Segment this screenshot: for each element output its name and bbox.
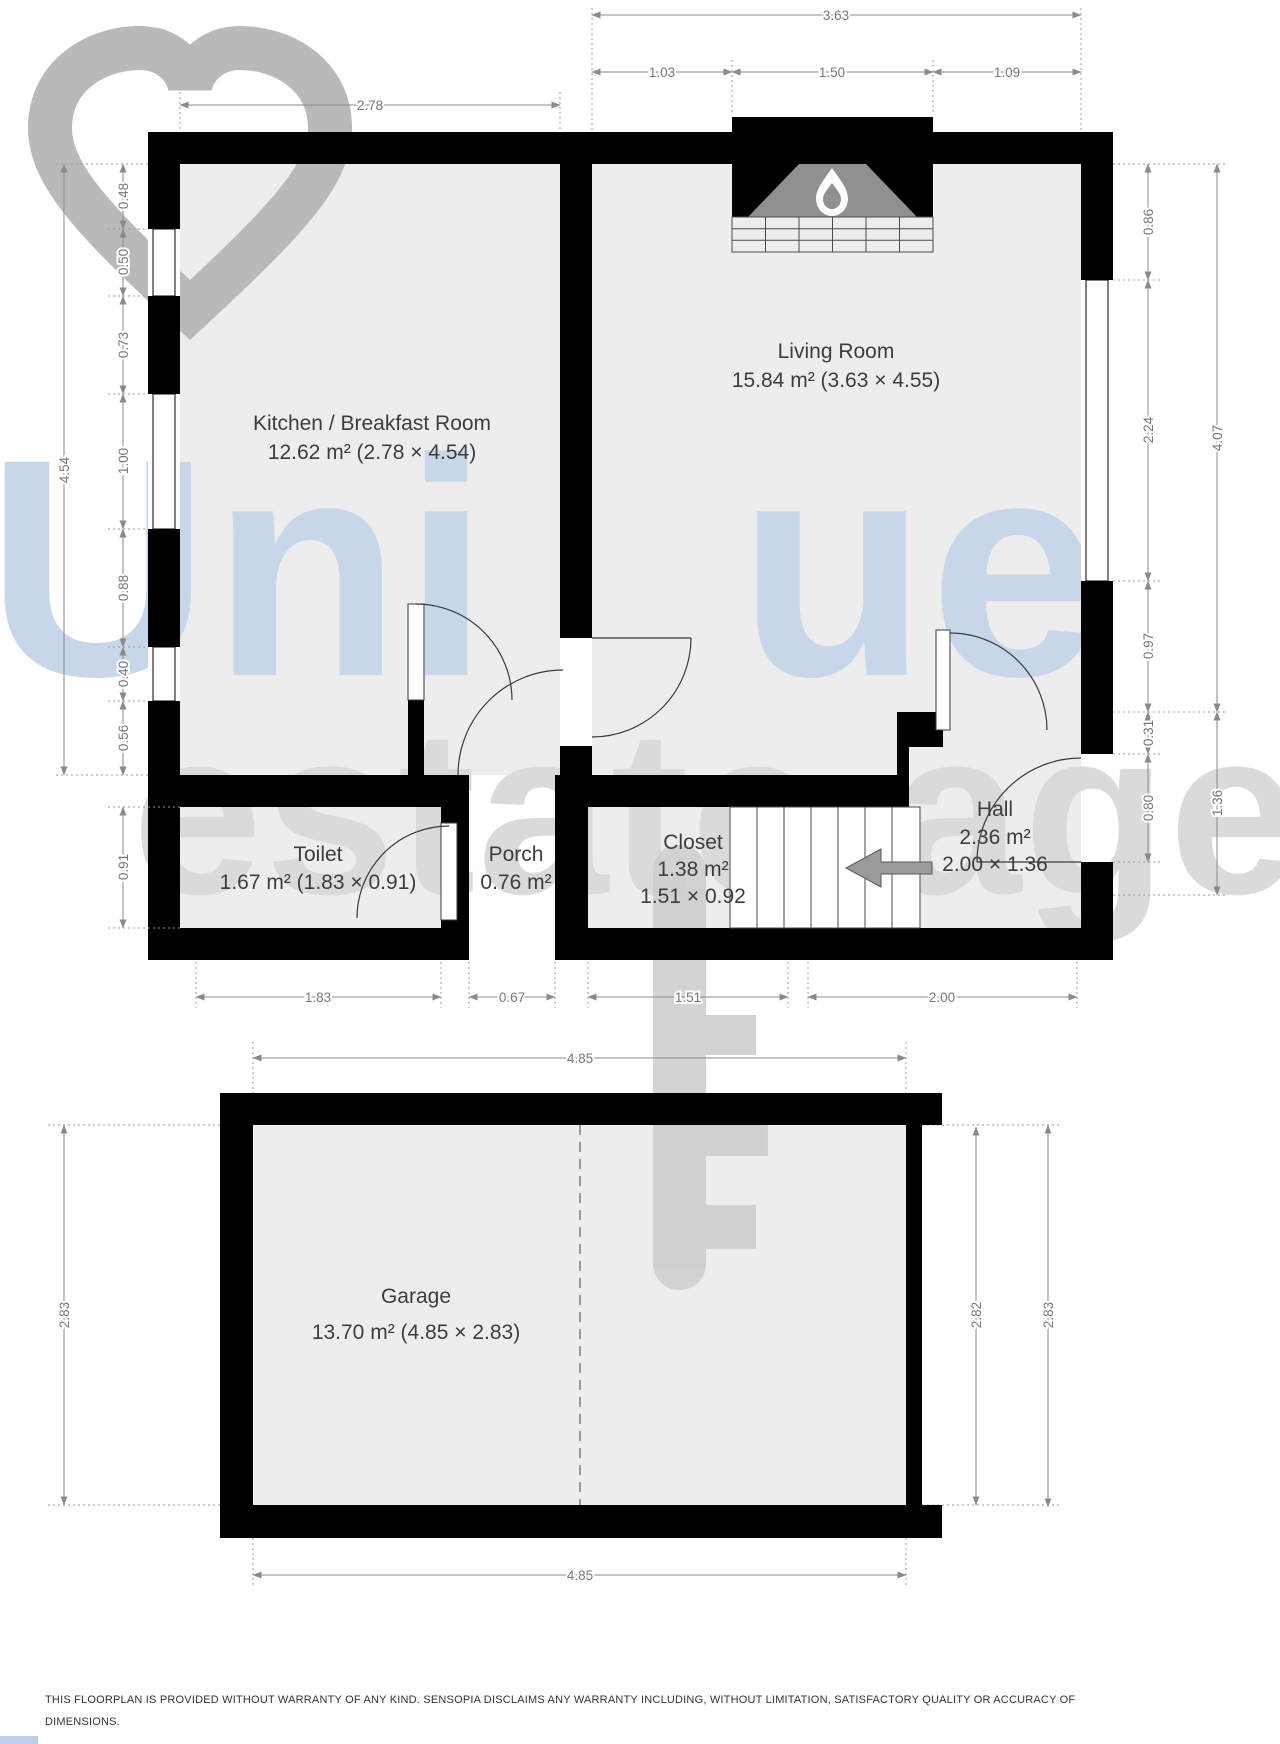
wall-left-seg xyxy=(148,529,180,647)
window-left-2 xyxy=(153,394,175,529)
windows xyxy=(148,229,1113,701)
porch-label: Porch xyxy=(489,843,544,866)
toilet-detail: 1.67 m² (1.83 × 0.91) xyxy=(220,871,417,894)
dim-label: 0.56 xyxy=(116,725,131,751)
room-labels: Kitchen / Breakfast Room 12.62 m² (2.78 … xyxy=(220,340,1048,1344)
dim-label: 0.91 xyxy=(116,854,131,880)
wall-divider xyxy=(555,775,909,807)
dim-label: 0.48 xyxy=(116,183,131,209)
wall-kitchen-living xyxy=(560,164,592,638)
door-arc-living xyxy=(592,638,691,737)
window-left-1 xyxy=(153,229,175,296)
dim-label: 2.82 xyxy=(969,1302,984,1328)
wall-door-stub xyxy=(408,700,424,775)
dim-label: 0.50 xyxy=(116,249,131,275)
garage-detail: 13.70 m² (4.85 × 2.83) xyxy=(312,1321,520,1344)
staircase xyxy=(730,807,932,928)
disclaimer-line1: THIS FLOORPLAN IS PROVIDED WITHOUT WARRA… xyxy=(45,1694,1075,1706)
wall-porch-closet xyxy=(555,807,588,928)
door-leaf-kitchen xyxy=(408,604,424,700)
dim-label: 1.00 xyxy=(116,448,131,474)
dim-label: 1.51 xyxy=(675,990,701,1005)
garage-walls xyxy=(220,1093,942,1538)
dim-label: 0.31 xyxy=(1141,720,1156,746)
dim-label: 1.03 xyxy=(649,65,675,80)
door-leaf-toilet xyxy=(441,823,457,920)
wall-left-seg xyxy=(148,132,180,229)
garage-wall-bottom xyxy=(220,1505,942,1538)
kitchen-detail: 12.62 m² (2.78 × 4.54) xyxy=(268,441,476,464)
closet-label: Closet xyxy=(663,831,723,854)
dim-label: 4.07 xyxy=(1210,425,1225,451)
dim-label: 4.85 xyxy=(567,1051,593,1066)
door-leaf-hall xyxy=(936,630,950,730)
wall-left-seg xyxy=(148,296,180,394)
wall-bottom-seg xyxy=(555,928,1113,960)
door-arc-kitchen xyxy=(416,604,512,700)
dim-label: 0.80 xyxy=(1141,795,1156,821)
door-arc-hall xyxy=(950,633,1047,730)
dim-label: 3.63 xyxy=(823,8,849,23)
wall-hall-stub xyxy=(897,747,909,807)
closet-size: 1.51 × 0.92 xyxy=(640,885,746,908)
hall-detail: 2.36 m² xyxy=(959,826,1030,849)
dim-label: 2.00 xyxy=(929,990,955,1005)
dim-label: 1.09 xyxy=(994,65,1020,80)
dim-label: 0.73 xyxy=(116,332,131,358)
kitchen-label: Kitchen / Breakfast Room xyxy=(253,412,491,435)
dim-label: 4.85 xyxy=(567,1568,593,1583)
living-room-label: Living Room xyxy=(778,340,895,363)
garage-wall-left xyxy=(220,1125,253,1538)
dim-label: 0.40 xyxy=(116,661,131,687)
window-left-3 xyxy=(153,647,175,701)
wall-right-seg xyxy=(1081,581,1113,754)
wall-top xyxy=(148,132,1113,164)
garage-wall-right xyxy=(906,1125,922,1505)
hall-size: 2.00 × 1.36 xyxy=(942,853,1048,876)
dim-label: 2.83 xyxy=(1041,1302,1056,1328)
wall-bottom-seg xyxy=(148,928,469,960)
garage-label: Garage xyxy=(381,1285,451,1308)
porch-detail: 0.76 m² xyxy=(480,871,551,894)
dim-label: 1.36 xyxy=(1210,790,1225,816)
dim-label: 2.24 xyxy=(1141,416,1156,443)
floorplan-drawing: 3.63 1.03 1.50 1.09 2.78 4.54 0.48 0.50 … xyxy=(0,0,1280,1744)
hall-label: Hall xyxy=(977,798,1013,821)
window-right xyxy=(1086,280,1108,581)
toilet-label: Toilet xyxy=(293,843,342,866)
dim-label: 0.97 xyxy=(1141,633,1156,659)
dim-label: 0.67 xyxy=(499,990,525,1005)
dim-label: 0.88 xyxy=(116,575,131,601)
closet-detail: 1.38 m² xyxy=(657,858,728,881)
living-room-detail: 15.84 m² (3.63 × 4.55) xyxy=(732,369,940,392)
wall-left-seg xyxy=(148,701,180,960)
dim-label: 2.78 xyxy=(357,98,383,113)
dim-label: 2.83 xyxy=(57,1302,72,1328)
wall-right-seg xyxy=(1081,132,1113,280)
dim-label: 1.83 xyxy=(305,990,331,1005)
wall-divider xyxy=(148,775,469,807)
fireplace-hearth-grid xyxy=(732,217,933,252)
watermark-fragment xyxy=(0,1736,38,1744)
garage-wall-top xyxy=(220,1093,942,1125)
dim-label: 1.50 xyxy=(819,65,845,80)
dim-label: 0.86 xyxy=(1141,209,1156,235)
floorplan-page: Uni ue estate agency xyxy=(0,0,1280,1744)
dim-label: 4.54 xyxy=(57,456,72,483)
disclaimer-line2: DIMENSIONS. xyxy=(45,1716,120,1728)
